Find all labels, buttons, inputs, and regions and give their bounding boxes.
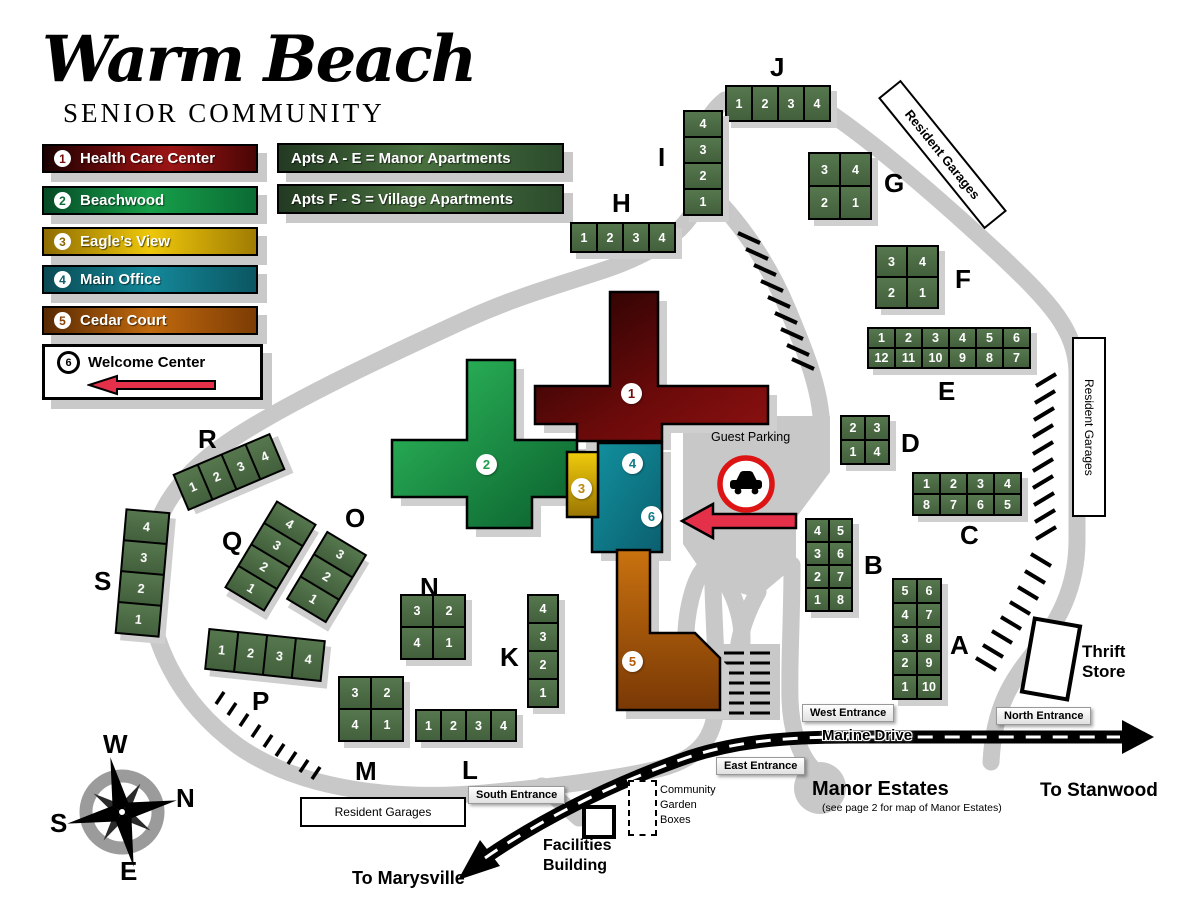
building-P-label: P (252, 686, 269, 717)
building-K: 4321 (527, 594, 559, 708)
building-unit: 1 (683, 188, 723, 216)
guest-parking-label: Guest Parking (711, 430, 790, 444)
building-unit: 1 (805, 587, 830, 612)
legend-label: Main Office (80, 271, 161, 288)
building-unit: 6 (828, 541, 853, 566)
building-D-label: D (901, 428, 920, 459)
building-unit: 4 (400, 626, 434, 660)
legend-red-arrow-icon (87, 374, 217, 396)
building-unit: 1 (415, 709, 442, 742)
marker-eagles-view: 3 (571, 478, 592, 499)
building-unit: 2 (894, 327, 923, 349)
community-garden-boxes-outline (628, 780, 657, 836)
building-unit: 4 (338, 708, 372, 742)
building-unit: 3 (875, 245, 908, 278)
building-unit: 2 (751, 85, 779, 122)
building-unit: 2 (527, 650, 559, 680)
building-O-label: O (345, 503, 365, 534)
building-unit: 6 (1002, 327, 1031, 349)
building-unit: 4 (648, 222, 676, 253)
marine-drive-label: Marine Drive (822, 727, 912, 744)
building-unit: 4 (993, 472, 1022, 495)
building-unit: 1 (370, 708, 404, 742)
building-C-label: C (960, 520, 979, 551)
legend-number-1: 1 (54, 150, 71, 167)
manor-estates-label: Manor Estates (812, 778, 949, 801)
building-unit: 4 (839, 152, 872, 187)
building-I-label: I (658, 142, 665, 173)
compass-east-label: E (120, 856, 137, 887)
building-S-label: S (94, 566, 111, 597)
building-unit: 4 (948, 327, 977, 349)
building-G: 3421 (808, 152, 872, 220)
building-unit: 2 (939, 472, 968, 495)
legend-health-care-center: 1 Health Care Center (42, 144, 258, 173)
map-base-layer (0, 0, 1200, 913)
building-H-label: H (612, 188, 631, 219)
building-unit: 1 (725, 85, 753, 122)
building-unit: 4 (291, 637, 326, 682)
building-unit: 4 (805, 518, 830, 543)
building-unit: 8 (828, 587, 853, 612)
legend-label: Welcome Center (88, 354, 205, 371)
building-unit: 1 (892, 674, 918, 700)
building-unit: 7 (939, 493, 968, 516)
building-unit: 7 (916, 602, 942, 628)
building-unit: 4 (803, 85, 831, 122)
building-unit: 4 (527, 594, 559, 624)
building-unit: 6 (916, 578, 942, 604)
building-E: 123456121110987 (867, 327, 1031, 369)
legend-number-5: 5 (54, 312, 71, 329)
building-unit: 1 (840, 439, 866, 465)
legend-label: Eagle’s View (80, 233, 170, 250)
building-unit: 3 (777, 85, 805, 122)
building-unit: 3 (622, 222, 650, 253)
building-unit: 2 (596, 222, 624, 253)
marker-welcome-center: 6 (641, 506, 662, 527)
marker-main-office: 4 (622, 453, 643, 474)
building-unit: 4 (683, 110, 723, 138)
legend-number-2: 2 (54, 192, 71, 209)
building-unit: 3 (683, 136, 723, 164)
apt-key-village: Apts F - S = Village Apartments (277, 184, 564, 214)
building-J-label: J (770, 52, 784, 83)
building-unit: 8 (916, 626, 942, 652)
facilities-building-label: Facilities Building (543, 836, 611, 876)
building-unit: 5 (892, 578, 918, 604)
building-unit: 10 (916, 674, 942, 700)
building-unit: 9 (948, 347, 977, 369)
north-entrance-label: North Entrance (996, 707, 1091, 725)
building-unit: 3 (465, 709, 492, 742)
building-unit: 2 (808, 185, 841, 220)
building-unit: 7 (1002, 347, 1031, 369)
west-entrance-label: West Entrance (802, 704, 894, 722)
building-unit: 2 (370, 676, 404, 710)
building-B: 45362718 (805, 518, 853, 612)
facilities-building-square (582, 805, 616, 839)
car-sign-icon (720, 458, 772, 510)
building-unit: 2 (875, 276, 908, 309)
building-N: 3241 (400, 594, 466, 660)
compass-north-label: N (176, 783, 195, 814)
building-unit: 7 (828, 564, 853, 589)
apt-key-text: Apts F - S = Village Apartments (291, 191, 513, 208)
building-unit: 5 (975, 327, 1004, 349)
building-unit: 2 (683, 162, 723, 190)
building-M: 3241 (338, 676, 404, 742)
legend-cedar-court: 5 Cedar Court (42, 306, 258, 335)
building-J: 1234 (725, 85, 831, 122)
building-L-label: L (462, 755, 478, 786)
legend-number-6: 6 (57, 351, 80, 374)
building-unit: 1 (839, 185, 872, 220)
compass-west-label: W (103, 729, 128, 760)
legend-label: Beachwood (80, 192, 164, 209)
logo-subtitle: SENIOR COMMUNITY (63, 98, 385, 129)
building-C: 12348765 (912, 472, 1022, 516)
legend-label: Health Care Center (80, 150, 215, 167)
building-unit: 3 (808, 152, 841, 187)
building-unit: 3 (805, 541, 830, 566)
building-unit: 1 (527, 678, 559, 708)
building-I: 4321 (683, 110, 723, 216)
building-unit: 1 (432, 626, 466, 660)
resident-garages-right-label: Resident Garages (1072, 337, 1106, 517)
building-unit: 8 (912, 493, 941, 516)
building-unit: 1 (115, 601, 163, 638)
marker-beachwood: 2 (476, 454, 497, 475)
building-A-label: A (950, 630, 969, 661)
building-unit: 6 (966, 493, 995, 516)
community-garden-label: Community Garden Boxes (660, 783, 716, 828)
campus-map: Warm Beach SENIOR COMMUNITY 1 Health Car… (0, 0, 1200, 913)
building-unit: 4 (892, 602, 918, 628)
to-stanwood-label: To Stanwood (1040, 780, 1158, 802)
building-unit: 3 (338, 676, 372, 710)
building-unit: 3 (527, 622, 559, 652)
marker-health-care-center: 1 (621, 383, 642, 404)
building-unit: 5 (993, 493, 1022, 516)
legend-number-3: 3 (54, 233, 71, 250)
compass-south-label: S (50, 808, 67, 839)
building-G-label: G (884, 168, 904, 199)
building-unit: 4 (906, 245, 939, 278)
resident-garages-bottom-label: Resident Garages (300, 797, 466, 827)
building-unit: 1 (912, 472, 941, 495)
building-unit: 10 (921, 347, 950, 369)
building-A: 56473829110 (892, 578, 942, 700)
building-M-label: M (355, 756, 377, 787)
building-unit: 5 (828, 518, 853, 543)
legend-beachwood: 2 Beachwood (42, 186, 258, 215)
building-F-label: F (955, 264, 971, 295)
building-unit: 11 (894, 347, 923, 369)
building-unit: 8 (975, 347, 1004, 369)
manor-estates-note: (see page 2 for map of Manor Estates) (822, 802, 1002, 814)
legend-eagles-view: 3 Eagle’s View (42, 227, 258, 256)
building-unit: 2 (840, 415, 866, 441)
building-unit: 3 (921, 327, 950, 349)
building-D: 2314 (840, 415, 890, 465)
to-marysville-label: To Marysville (352, 868, 465, 889)
building-unit: 1 (570, 222, 598, 253)
apt-key-text: Apts A - E = Manor Apartments (291, 150, 511, 167)
building-unit: 3 (966, 472, 995, 495)
building-unit: 9 (916, 650, 942, 676)
building-K-label: K (500, 642, 519, 673)
south-entrance-label: South Entrance (468, 786, 565, 804)
building-E-label: E (938, 376, 955, 407)
legend-number-4: 4 (54, 271, 71, 288)
building-unit: 2 (440, 709, 467, 742)
building-N-label: N (420, 572, 439, 603)
building-unit: 3 (864, 415, 890, 441)
building-unit: 4 (864, 439, 890, 465)
thrift-store-label: Thrift Store (1082, 642, 1125, 682)
building-unit: 1 (906, 276, 939, 309)
building-H: 1234 (570, 222, 676, 253)
building-unit: 12 (867, 347, 896, 369)
building-unit: 3 (892, 626, 918, 652)
logo-title: Warm Beach (42, 22, 475, 97)
marker-cedar-court: 5 (622, 651, 643, 672)
building-unit: 2 (892, 650, 918, 676)
east-entrance-label: East Entrance (716, 757, 805, 775)
legend-main-office: 4 Main Office (42, 265, 258, 294)
building-unit: 1 (867, 327, 896, 349)
building-L: 1234 (415, 709, 517, 742)
building-B-label: B (864, 550, 883, 581)
building-unit: 2 (805, 564, 830, 589)
building-unit: 4 (490, 709, 517, 742)
building-F: 3421 (875, 245, 939, 309)
building-R-label: R (198, 424, 217, 455)
legend-welcome-center: 6 Welcome Center (42, 344, 263, 400)
building-Q-label: Q (222, 526, 242, 557)
legend-label: Cedar Court (80, 312, 167, 329)
apt-key-manor: Apts A - E = Manor Apartments (277, 143, 564, 173)
health-care-center-building (535, 292, 768, 441)
